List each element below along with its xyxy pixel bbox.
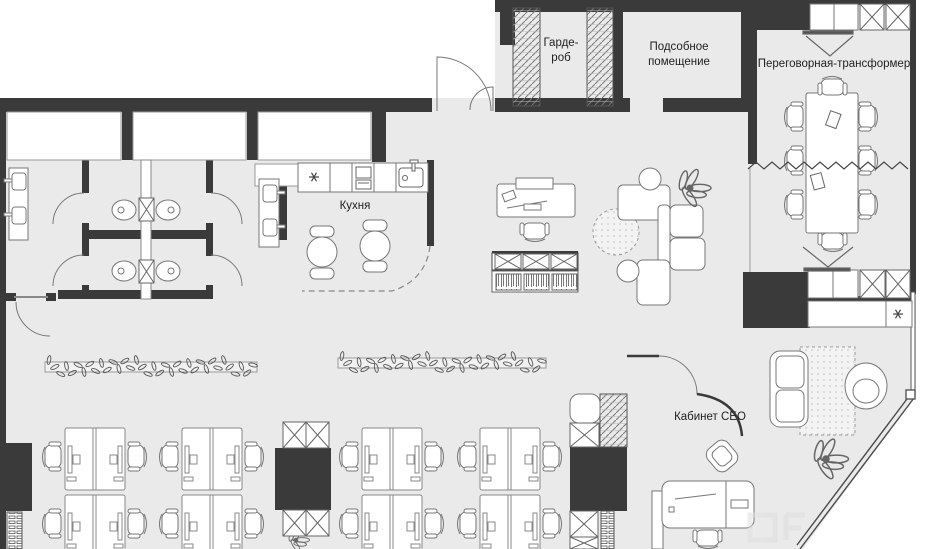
- room-label-meeting: Переговорная-трансформер: [750, 57, 918, 72]
- room-label-utility: Подсобное помещение: [616, 40, 742, 70]
- office-floor-plan: Гарде- роб Подсобное помещение Переговор…: [0, 0, 927, 549]
- room-label-kitchen: Кухня: [326, 199, 384, 214]
- storage-column: [570, 394, 600, 423]
- pouf: [617, 260, 639, 282]
- room-label-ceo: Кабинет CEO: [664, 410, 756, 425]
- floor-plan-drawing: [0, 0, 927, 549]
- ceo-armchair: [845, 363, 887, 409]
- room-label-wardrobe: Гарде- роб: [531, 36, 591, 66]
- pouf: [639, 168, 661, 190]
- ceo-sofa: [770, 351, 808, 427]
- stove-icon: [356, 167, 371, 189]
